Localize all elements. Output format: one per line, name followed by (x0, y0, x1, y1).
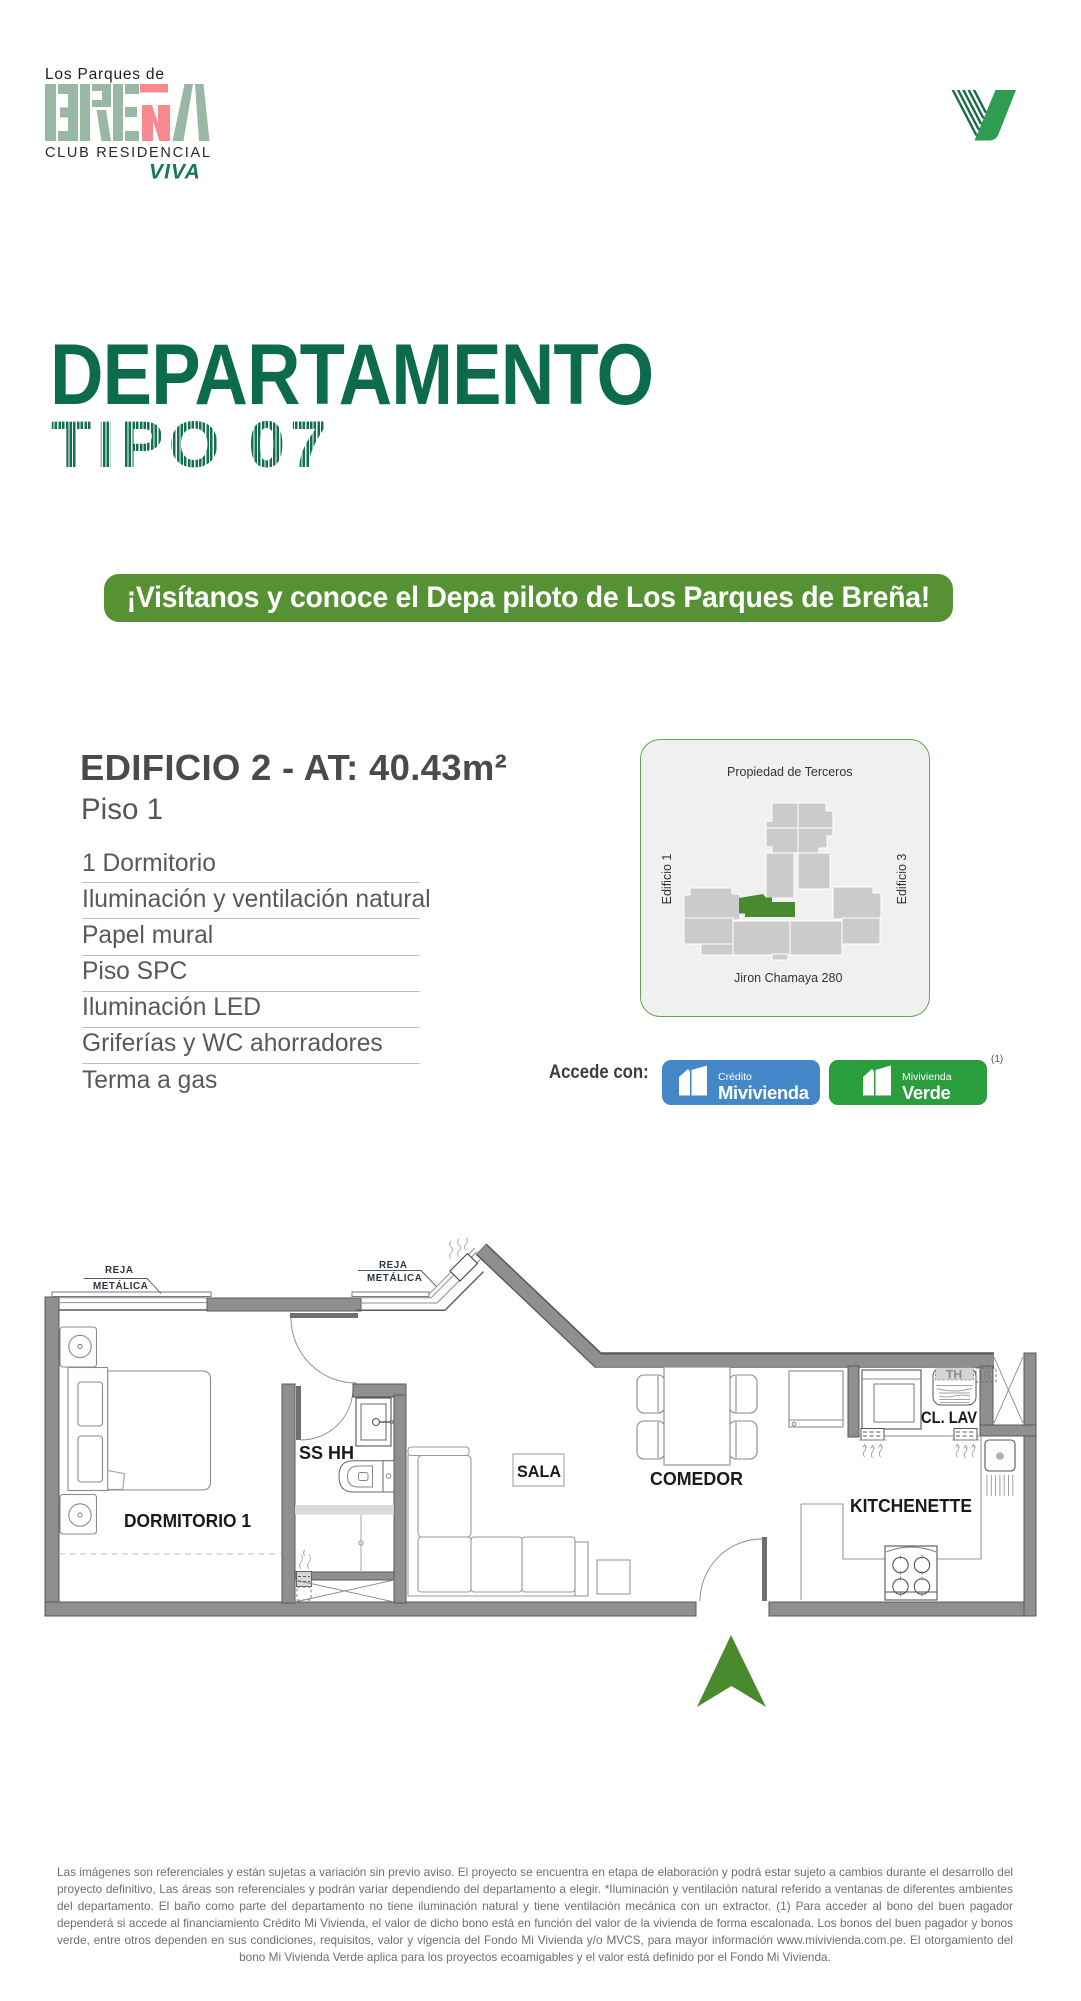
svg-text:DORMITORIO 1: DORMITORIO 1 (124, 1511, 251, 1531)
svg-text:KITCHENETTE: KITCHENETTE (850, 1496, 972, 1516)
svg-text:COMEDOR: COMEDOR (650, 1469, 743, 1489)
svg-text:Los Parques de: Los Parques de (45, 66, 165, 83)
svg-text:TH: TH (946, 1368, 962, 1382)
svg-text:SALA: SALA (517, 1463, 561, 1481)
svg-text:REJA: REJA (105, 1265, 134, 1276)
svg-text:SS HH: SS HH (299, 1443, 354, 1463)
svg-text:VIVA: VIVA (149, 161, 201, 184)
svg-text:METÁLICA: METÁLICA (367, 1272, 422, 1284)
svg-text:METÁLICA: METÁLICA (93, 1280, 148, 1292)
svg-text:REJA: REJA (379, 1260, 408, 1271)
svg-text:CLUB RESIDENCIAL: CLUB RESIDENCIAL (45, 145, 212, 161)
svg-text:CL. LAV: CL. LAV (921, 1409, 977, 1427)
